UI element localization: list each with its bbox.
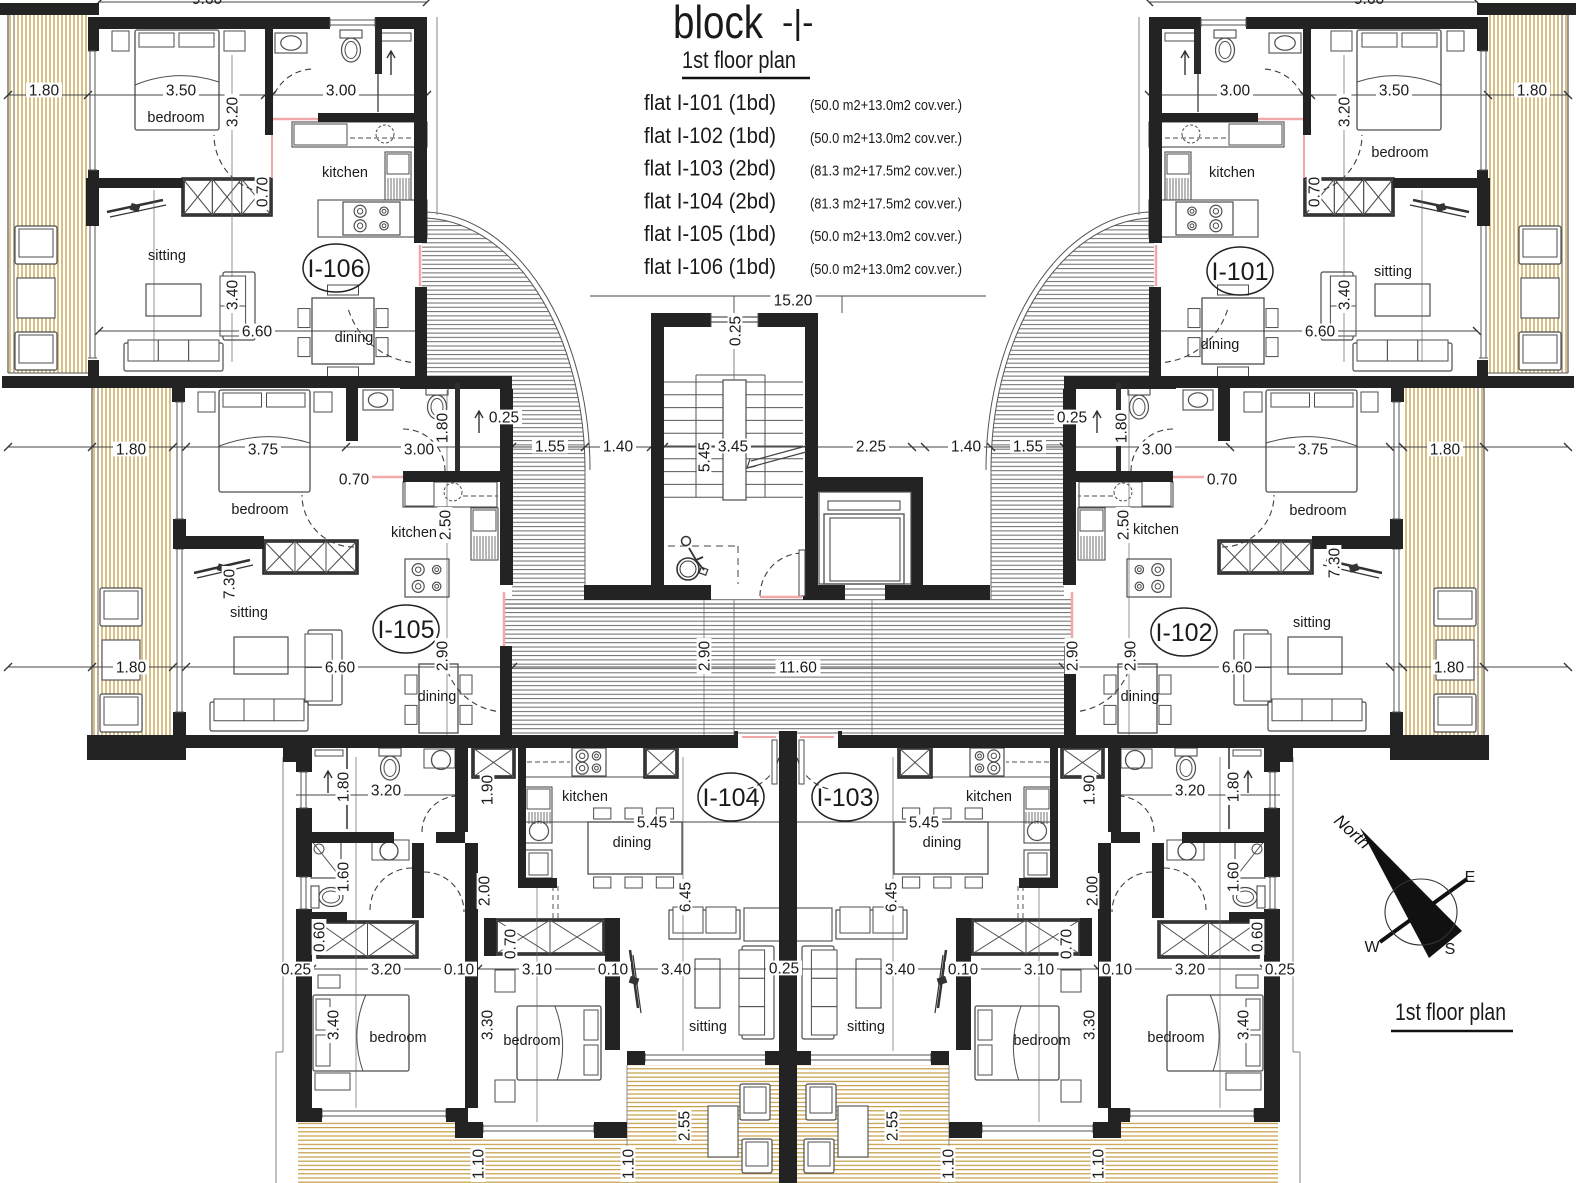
svg-text:0.70: 0.70: [339, 471, 370, 488]
svg-text:6.45: 6.45: [677, 882, 694, 912]
svg-text:3.20: 3.20: [371, 961, 402, 978]
svg-text:dining: dining: [1201, 337, 1240, 353]
svg-text:1.90: 1.90: [1081, 775, 1098, 806]
svg-text:5.45: 5.45: [637, 814, 667, 831]
svg-text:3.50: 3.50: [166, 82, 197, 99]
svg-text:3.40: 3.40: [661, 961, 692, 978]
svg-text:3.75: 3.75: [248, 441, 278, 458]
svg-text:1.80: 1.80: [116, 441, 147, 458]
svg-text:7.30: 7.30: [1326, 548, 1343, 579]
svg-text:3.00: 3.00: [404, 441, 435, 458]
svg-text:3.10: 3.10: [522, 961, 553, 978]
svg-text:bedroom: bedroom: [503, 1033, 560, 1049]
svg-text:5.45: 5.45: [909, 814, 939, 831]
svg-text:E: E: [1465, 869, 1476, 886]
svg-text:3.00: 3.00: [1142, 441, 1173, 458]
svg-text:bedroom: bedroom: [147, 110, 204, 126]
svg-text:1.40: 1.40: [603, 438, 634, 455]
svg-text:bedroom: bedroom: [1147, 1030, 1204, 1046]
svg-text:9.60: 9.60: [1354, 0, 1385, 8]
svg-text:kitchen: kitchen: [1209, 165, 1255, 181]
svg-text:1.90: 1.90: [479, 775, 496, 806]
svg-text:sitting: sitting: [230, 605, 268, 621]
svg-text:1.80: 1.80: [116, 659, 147, 676]
svg-text:kitchen: kitchen: [966, 789, 1012, 805]
svg-text:6.60: 6.60: [1305, 323, 1336, 340]
svg-text:1.40: 1.40: [951, 438, 982, 455]
svg-text:I-104: I-104: [703, 784, 760, 812]
svg-text:(50.0 m2+13.0m2 cov.ver.): (50.0 m2+13.0m2 cov.ver.): [810, 130, 962, 147]
svg-text:1.80: 1.80: [1517, 82, 1548, 99]
svg-text:3.20: 3.20: [1336, 97, 1353, 128]
svg-text:(81.3 m2+17.5m2 cov.ver.): (81.3 m2+17.5m2 cov.ver.): [810, 195, 962, 212]
svg-text:1st floor plan: 1st floor plan: [682, 47, 796, 74]
svg-text:flat I-106 (1bd): flat I-106 (1bd): [644, 254, 776, 279]
svg-text:0.60: 0.60: [311, 922, 328, 953]
svg-text:0.70: 0.70: [1306, 177, 1323, 208]
svg-text:3.10: 3.10: [1024, 961, 1055, 978]
svg-text:sitting: sitting: [148, 248, 186, 264]
svg-text:1.80: 1.80: [1225, 772, 1242, 803]
svg-text:9.60: 9.60: [192, 0, 223, 8]
svg-text:0.10: 0.10: [598, 961, 629, 978]
svg-text:I-106: I-106: [308, 255, 365, 283]
svg-text:3.50: 3.50: [1379, 82, 1410, 99]
svg-text:1.10: 1.10: [940, 1149, 957, 1180]
svg-text:0.25: 0.25: [727, 316, 744, 346]
svg-text:6.60: 6.60: [325, 659, 356, 676]
svg-text:0.60: 0.60: [1249, 922, 1266, 953]
svg-text:1.60: 1.60: [335, 862, 352, 893]
svg-text:6.60: 6.60: [242, 323, 273, 340]
svg-text:1.55: 1.55: [535, 438, 565, 455]
svg-text:flat I-103 (2bd): flat I-103 (2bd): [644, 156, 776, 181]
svg-text:15.20: 15.20: [774, 292, 813, 309]
svg-text:3.40: 3.40: [1336, 280, 1353, 311]
svg-text:(50.0 m2+13.0m2 cov.ver.): (50.0 m2+13.0m2 cov.ver.): [810, 97, 962, 114]
svg-text:3.00: 3.00: [326, 82, 357, 99]
svg-text:0.25: 0.25: [769, 960, 799, 977]
svg-text:3.40: 3.40: [885, 961, 916, 978]
svg-text:2.00: 2.00: [476, 876, 493, 907]
svg-text:I-105: I-105: [378, 616, 435, 644]
svg-text:3.40: 3.40: [224, 280, 241, 311]
svg-text:(50.0 m2+13.0m2 cov.ver.): (50.0 m2+13.0m2 cov.ver.): [810, 261, 962, 278]
svg-text:2.50: 2.50: [437, 510, 454, 541]
svg-text:3.20: 3.20: [371, 782, 402, 799]
svg-text:1.80: 1.80: [1430, 441, 1461, 458]
svg-text:kitchen: kitchen: [322, 165, 368, 181]
svg-text:0.25: 0.25: [281, 961, 311, 978]
svg-text:2.25: 2.25: [856, 438, 886, 455]
svg-text:(81.3 m2+17.5m2 cov.ver.): (81.3 m2+17.5m2 cov.ver.): [810, 163, 962, 180]
svg-text:bedroom: bedroom: [231, 502, 288, 518]
svg-text:1.10: 1.10: [620, 1149, 637, 1180]
svg-text:1.55: 1.55: [1013, 438, 1043, 455]
svg-text:0.70: 0.70: [1207, 471, 1238, 488]
svg-text:0.70: 0.70: [502, 929, 519, 960]
svg-text:1.60: 1.60: [1225, 862, 1242, 893]
svg-text:1.10: 1.10: [470, 1149, 487, 1180]
svg-text:(50.0 m2+13.0m2 cov.ver.): (50.0 m2+13.0m2 cov.ver.): [810, 228, 962, 245]
svg-text:2.90: 2.90: [1122, 641, 1139, 672]
svg-text:3.30: 3.30: [479, 1010, 496, 1041]
svg-text:3.30: 3.30: [1081, 1010, 1098, 1041]
svg-text:0.70: 0.70: [254, 177, 271, 208]
svg-text:0.25: 0.25: [489, 409, 519, 426]
svg-text:2.90: 2.90: [434, 641, 451, 672]
svg-text:kitchen: kitchen: [562, 789, 608, 805]
svg-text:block: block: [673, 0, 764, 48]
svg-text:0.10: 0.10: [1102, 961, 1133, 978]
svg-text:bedroom: bedroom: [369, 1030, 426, 1046]
svg-text:flat I-105 (1bd): flat I-105 (1bd): [644, 221, 776, 246]
svg-text:3.75: 3.75: [1298, 441, 1328, 458]
svg-text:3.00: 3.00: [1220, 82, 1251, 99]
svg-text:0.10: 0.10: [948, 961, 979, 978]
svg-text:sitting: sitting: [1374, 264, 1412, 280]
svg-text:0.70: 0.70: [1058, 929, 1075, 960]
svg-text:5.45: 5.45: [696, 442, 713, 472]
svg-text:1.10: 1.10: [1090, 1149, 1107, 1180]
svg-text:kitchen: kitchen: [1133, 522, 1179, 538]
svg-text:2.50: 2.50: [1115, 510, 1132, 541]
svg-text:dining: dining: [335, 330, 374, 346]
svg-text:1st floor plan: 1st floor plan: [1395, 999, 1506, 1026]
svg-text:3.45: 3.45: [718, 438, 748, 455]
svg-text:3.40: 3.40: [325, 1010, 342, 1041]
svg-text:0.25: 0.25: [1057, 409, 1087, 426]
svg-text:dining: dining: [1121, 689, 1160, 705]
svg-text:6.45: 6.45: [883, 882, 900, 912]
svg-text:6.60: 6.60: [1222, 659, 1253, 676]
svg-text:dining: dining: [613, 835, 652, 851]
svg-text:flat I-104 (2bd): flat I-104 (2bd): [644, 188, 776, 213]
svg-text:I-103: I-103: [817, 784, 874, 812]
svg-text:0.10: 0.10: [444, 961, 475, 978]
svg-text:2.55: 2.55: [884, 1111, 901, 1141]
svg-text:3.20: 3.20: [1175, 961, 1206, 978]
svg-text:1.80: 1.80: [1113, 413, 1130, 444]
svg-text:bedroom: bedroom: [1371, 145, 1428, 161]
svg-text:3.40: 3.40: [1235, 1010, 1252, 1041]
svg-text:I-101: I-101: [1212, 258, 1269, 286]
svg-text:1.80: 1.80: [1434, 659, 1465, 676]
svg-text:1.80: 1.80: [335, 772, 352, 803]
svg-text:2.90: 2.90: [696, 641, 713, 672]
svg-text:11.60: 11.60: [779, 659, 817, 676]
svg-text:1.80: 1.80: [29, 82, 60, 99]
svg-text:dining: dining: [418, 689, 457, 705]
svg-text:7.30: 7.30: [221, 569, 238, 600]
svg-text:sitting: sitting: [689, 1019, 727, 1035]
svg-text:3.20: 3.20: [224, 97, 241, 128]
svg-text:flat I-101 (1bd): flat I-101 (1bd): [644, 90, 776, 115]
svg-text:W: W: [1364, 939, 1380, 956]
svg-text:3.20: 3.20: [1175, 782, 1206, 799]
svg-text:-|-: -|-: [782, 4, 813, 42]
svg-text:S: S: [1445, 941, 1456, 958]
svg-text:2.00: 2.00: [1084, 876, 1101, 907]
svg-text:dining: dining: [923, 835, 962, 851]
svg-text:bedroom: bedroom: [1289, 503, 1346, 519]
svg-text:1.80: 1.80: [434, 413, 451, 444]
svg-text:sitting: sitting: [1293, 615, 1331, 631]
svg-text:I-102: I-102: [1156, 619, 1213, 647]
svg-text:sitting: sitting: [847, 1019, 885, 1035]
svg-text:0.25: 0.25: [1265, 961, 1295, 978]
svg-text:flat I-102 (1bd): flat I-102 (1bd): [644, 123, 776, 148]
svg-text:bedroom: bedroom: [1013, 1033, 1070, 1049]
svg-text:2.90: 2.90: [1064, 641, 1081, 672]
svg-text:kitchen: kitchen: [391, 525, 437, 541]
svg-text:2.55: 2.55: [676, 1111, 693, 1141]
